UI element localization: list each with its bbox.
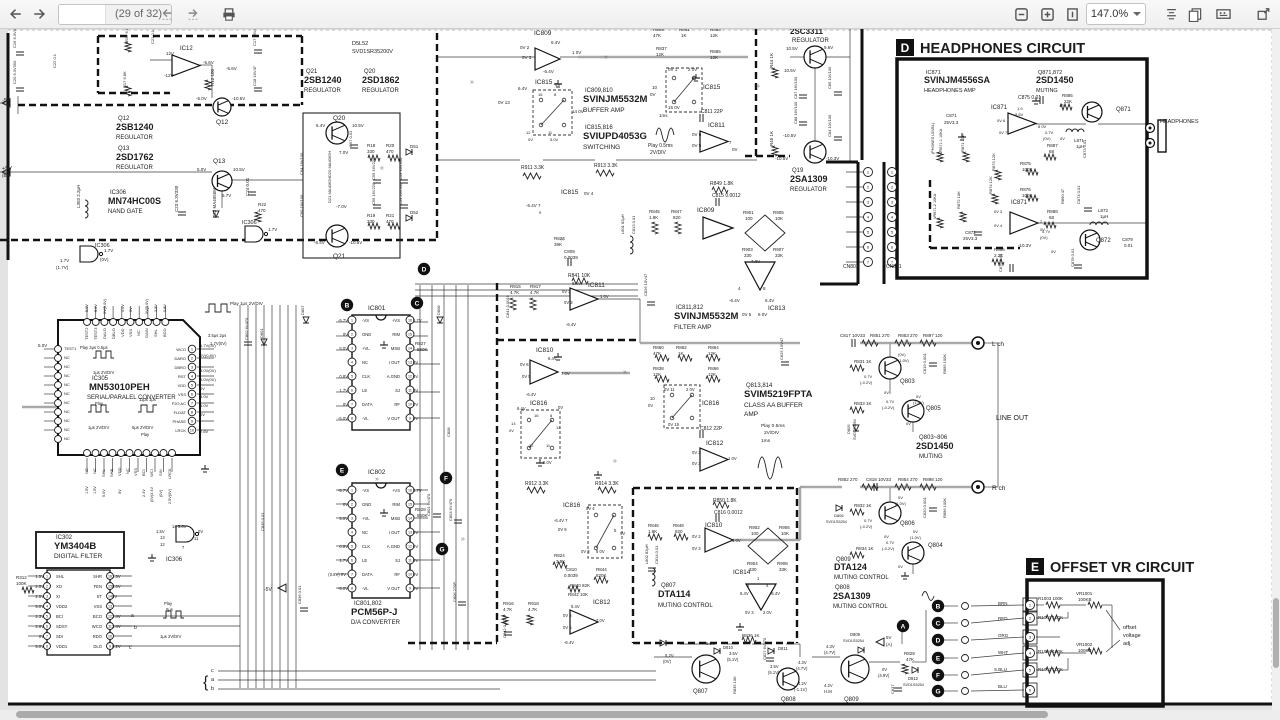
schematic-label: 1μs 2V/DIV bbox=[160, 634, 181, 639]
schematic-label: 560K bbox=[417, 347, 428, 352]
schematic-label: SHL bbox=[153, 328, 158, 337]
schematic-label: -VL bbox=[362, 416, 369, 421]
schematic-label: 2.3V bbox=[35, 614, 44, 619]
schematic-label: 3.5V bbox=[770, 664, 779, 669]
schematic-label: 12 bbox=[408, 544, 412, 548]
schematic-label: OFFSET VR CIRCUIT bbox=[1050, 560, 1194, 576]
schematic-label: 0V bbox=[413, 558, 418, 563]
schematic-label: MUTING CONTROL bbox=[834, 575, 889, 581]
schematic-label: C22 0.1 bbox=[52, 53, 57, 68]
schematic-label: V OUT bbox=[387, 586, 400, 591]
schematic-shape bbox=[962, 672, 969, 679]
schematic-label: HEADPHONES CIRCUIT bbox=[920, 41, 1085, 57]
schematic-label: 16 bbox=[534, 413, 539, 418]
vertical-scrollbar[interactable] bbox=[1272, 28, 1280, 710]
schematic-label: SHL bbox=[56, 574, 65, 579]
schematic-label: 0V bbox=[112, 594, 117, 599]
zoom-in-button[interactable] bbox=[1036, 3, 1058, 25]
schematic-label: 15 0V bbox=[668, 105, 680, 110]
schematic-label: C64 16V100 bbox=[299, 152, 304, 175]
schematic-label: R ch bbox=[992, 485, 1006, 492]
schematic-shape bbox=[101, 450, 108, 457]
schematic-label: C837 bbox=[890, 684, 895, 694]
schematic-label: 7 bbox=[351, 572, 353, 576]
schematic-shape bbox=[55, 400, 62, 407]
schematic-label: +VL bbox=[362, 516, 370, 521]
schematic-label: -10.5V bbox=[775, 156, 788, 161]
schematic-label: 47K bbox=[653, 33, 661, 38]
schematic-label: VSS bbox=[133, 468, 138, 476]
schematic-label: C813 0.01 bbox=[631, 215, 636, 234]
schematic-label: F2O AC bbox=[172, 401, 186, 406]
schematic-label: 12 bbox=[526, 130, 531, 135]
dual-page-button[interactable] bbox=[1184, 3, 1206, 25]
schematic-label: R903 bbox=[742, 247, 753, 252]
next-page-button[interactable] bbox=[182, 3, 204, 25]
schematic-label: 2SB1240 bbox=[304, 75, 342, 85]
schematic-label: NAND GATE bbox=[108, 209, 143, 215]
schematic-label: 2 0V bbox=[688, 67, 697, 72]
schematic-label: 0V 3 bbox=[745, 610, 754, 615]
schematic-label: NC bbox=[64, 373, 70, 378]
presentation-button[interactable] bbox=[1212, 3, 1234, 25]
schematic-label: C23 6.3V330 bbox=[174, 185, 179, 212]
schematic-label: 14 0V bbox=[572, 109, 584, 114]
schematic-label: REGULATOR bbox=[362, 88, 399, 94]
schematic-label: DARO bbox=[174, 356, 186, 361]
schematic-label: 0V bbox=[916, 394, 921, 399]
schematic-label: DTA124 bbox=[834, 562, 867, 572]
schematic-label: IC815 bbox=[561, 189, 579, 196]
schematic-label: 1.7V(0V) bbox=[210, 341, 227, 346]
schematic-label: R912 3.3K bbox=[525, 481, 549, 487]
schematic-label: 5.0V bbox=[339, 346, 348, 351]
schematic-label: CN871 bbox=[886, 264, 902, 270]
schematic-label: (1.7V) bbox=[56, 265, 69, 270]
schematic-label: G bbox=[439, 546, 444, 553]
schematic-label: 5.0V bbox=[35, 644, 44, 649]
schematic-label: R915 bbox=[510, 284, 521, 289]
history-back-button[interactable] bbox=[4, 3, 26, 25]
schematic-label: » bbox=[470, 79, 474, 86]
schematic-label: 1.8K bbox=[648, 529, 657, 534]
schematic-label: 0.7V bbox=[1042, 229, 1051, 234]
schematic-label: E bbox=[1031, 560, 1039, 574]
schematic-label: 10 bbox=[652, 85, 658, 90]
schematic-label: C827 6V470 bbox=[762, 637, 767, 660]
schematic-label: Q808 bbox=[781, 697, 796, 703]
schematic-label: TEST1 bbox=[64, 346, 77, 351]
schematic-label: 820 bbox=[675, 529, 683, 534]
schematic-label: XO bbox=[56, 584, 63, 589]
schematic-label: -5.7V bbox=[338, 318, 348, 323]
schematic-label: B bbox=[936, 603, 941, 610]
schematic-label: IC810 bbox=[705, 522, 723, 529]
schematic-label: » bbox=[375, 476, 379, 483]
schematic-shape bbox=[92, 450, 99, 457]
schematic-label: FEN bbox=[94, 584, 102, 589]
schematic-label: 4.3V bbox=[798, 660, 807, 665]
schematic-label: IC306 bbox=[242, 220, 257, 226]
schematic-label: 4.7K bbox=[510, 290, 519, 295]
schematic-label: HEADPHONES AMP bbox=[924, 88, 976, 94]
schematic-label: 2 bbox=[351, 502, 353, 506]
vertical-scrollbar-thumb[interactable] bbox=[1273, 598, 1279, 668]
document-area[interactable]: DE12345671234567123456123456789101162153… bbox=[0, 28, 1280, 720]
schematic-label: 5.0V bbox=[35, 604, 44, 609]
schematic-label: -6.4V bbox=[729, 298, 740, 303]
fit-page-button[interactable] bbox=[1061, 3, 1083, 25]
schematic-label: -5.0V bbox=[338, 416, 348, 421]
schematic-label: 2SD1450 bbox=[916, 441, 954, 451]
schematic-label: 1 0V bbox=[572, 50, 581, 55]
schematic-label: 470 bbox=[258, 208, 266, 213]
fit-page-icon bbox=[1066, 7, 1079, 22]
schematic-label: 0V 3 bbox=[581, 549, 590, 554]
schematic-label: 12K bbox=[710, 55, 718, 60]
schematic-label: 10 bbox=[408, 402, 412, 406]
schematic-label: 0V 7 bbox=[999, 130, 1008, 135]
schematic-label: R905 bbox=[773, 210, 784, 215]
schematic-label: IC812 bbox=[593, 599, 611, 606]
schematic-label: 1 bbox=[351, 318, 353, 322]
schematic-label: R862 bbox=[676, 345, 687, 350]
schematic-label: 0V 4 bbox=[584, 191, 594, 196]
schematic-label: 10K bbox=[775, 216, 783, 221]
print-button[interactable] bbox=[218, 3, 240, 25]
schematic-label: PCM56P-J bbox=[351, 607, 397, 618]
schematic-label: 0V bbox=[898, 564, 903, 569]
schematic-label: CLASS AA BUFFER bbox=[744, 402, 803, 409]
schematic-label: 0V bbox=[528, 137, 533, 142]
schematic-label: C803 6V470 bbox=[448, 498, 453, 521]
schematic-label: D811 bbox=[778, 646, 788, 651]
schematic-label: 8 bbox=[351, 416, 353, 420]
schematic-shape bbox=[962, 637, 969, 644]
schematic-label: 11 bbox=[408, 558, 412, 562]
schematic-label: MN74HC00S bbox=[108, 196, 161, 206]
schematic-label: C60 16V100 bbox=[299, 194, 304, 217]
schematic-label: R914 3.3K bbox=[595, 481, 619, 487]
schematic-label: IC816 bbox=[702, 400, 720, 407]
schematic-label: +VS bbox=[392, 488, 400, 493]
schematic-label: DATA bbox=[362, 402, 373, 407]
schematic-label: 4 bbox=[46, 604, 48, 608]
schematic-label: -6.4V bbox=[770, 591, 780, 596]
schematic-label: 5.0V(0V) bbox=[200, 377, 216, 382]
detach-window-icon bbox=[1256, 7, 1271, 21]
schematic-label: IC810 bbox=[536, 347, 554, 354]
page-number-input[interactable] bbox=[59, 5, 105, 24]
schematic-label: 0.01 bbox=[1124, 243, 1133, 248]
schematic-label: D20 MA4062H bbox=[327, 151, 332, 177]
zoom-out-button[interactable] bbox=[1010, 3, 1032, 25]
schematic-label: C55 16V220 bbox=[371, 157, 376, 180]
schematic-label: 0V bbox=[413, 360, 418, 365]
schematic-shape bbox=[1149, 142, 1152, 145]
schematic-shape bbox=[962, 688, 969, 695]
schematic-label: » bbox=[905, 339, 909, 346]
schematic-label: SWITCHING bbox=[583, 144, 620, 151]
schematic-shape bbox=[109, 450, 116, 457]
schematic-label: 12K bbox=[656, 52, 664, 57]
schematic-label: CN801 bbox=[843, 264, 859, 270]
schematic-label: 1μs 2V/DIV bbox=[93, 370, 114, 375]
schematic-shape bbox=[55, 427, 62, 434]
schematic-label: C19 6.3V35 bbox=[12, 28, 17, 48]
schematic-label: WHT bbox=[998, 650, 1008, 655]
schematic-label: R845 bbox=[649, 209, 660, 214]
schematic-label: 12V bbox=[166, 51, 174, 56]
schematic-label: 0.7V bbox=[864, 374, 873, 379]
schematic-label: IC812 bbox=[706, 440, 724, 447]
zoom-level-select[interactable]: 147.0% bbox=[1086, 3, 1146, 25]
schematic-label: 16 bbox=[408, 318, 412, 322]
schematic-label: D bbox=[901, 41, 910, 55]
schematic-label: (4.7V) bbox=[796, 666, 808, 671]
schematic-label: Q13 bbox=[213, 158, 226, 165]
schematic-label: 0V(0.8V) bbox=[200, 353, 216, 358]
previous-page-button[interactable] bbox=[156, 3, 178, 25]
schematic-shape bbox=[152, 450, 159, 457]
schematic-label: R908 bbox=[777, 561, 788, 566]
schematic-label: 0V bbox=[343, 502, 348, 507]
schematic-label: -6.4V 7 bbox=[554, 518, 568, 523]
schematic-label: IC801 bbox=[368, 305, 386, 312]
schematic-label: 1.7V bbox=[104, 248, 113, 253]
schematic-label: 6.4V bbox=[551, 40, 560, 45]
schematic-label: REGULATOR bbox=[304, 88, 341, 94]
schematic-shape bbox=[162, 319, 169, 326]
schematic-label: VR871-2 10KA bbox=[933, 193, 937, 219]
schematic-label: 15 bbox=[408, 332, 412, 336]
schematic-label: R875 bbox=[1020, 161, 1031, 166]
schematic-label: GAIN bbox=[144, 328, 149, 338]
schematic-label: -10.3V bbox=[1018, 243, 1031, 248]
schematic-label: SJ bbox=[395, 558, 400, 563]
schematic-page: DE12345671234567123456123456789101162153… bbox=[0, 28, 1280, 710]
schematic-label: RIM bbox=[392, 332, 400, 337]
schematic-label: (0V) bbox=[100, 257, 109, 262]
schematic-label: SJ bbox=[395, 388, 400, 393]
schematic-label: 100 bbox=[751, 531, 759, 536]
schematic-label: L ch bbox=[992, 341, 1004, 348]
schematic-label: C842 0.0015 bbox=[502, 614, 507, 638]
schematic-label: -10.5V bbox=[349, 240, 362, 245]
schematic-label: -5V bbox=[264, 587, 272, 593]
schematic-label: R837 bbox=[656, 46, 667, 51]
schematic-label: 0V 6 bbox=[692, 132, 702, 137]
zoom-level-value: 147.0% bbox=[1091, 8, 1128, 20]
schematic-label: HEADPHONES bbox=[1160, 119, 1199, 125]
schematic-label: RIM bbox=[392, 502, 400, 507]
schematic-label: (-0.2V) bbox=[882, 405, 895, 410]
schematic-label: 0V bbox=[884, 390, 889, 395]
schematic-label: MUTING bbox=[919, 454, 943, 460]
schematic-shape bbox=[143, 450, 150, 457]
arrow-left-icon bbox=[8, 7, 23, 21]
schematic-label: 0V 4 bbox=[586, 506, 595, 511]
arrow-right-small-icon bbox=[186, 6, 200, 22]
schematic-label: D812 bbox=[908, 676, 919, 681]
schematic-label: BCI bbox=[141, 469, 146, 476]
schematic-label: 4 bbox=[351, 530, 353, 534]
schematic-label: R872 10K bbox=[956, 191, 961, 209]
schematic-label: 0V 1 bbox=[668, 67, 678, 72]
schematic-label: 6 bbox=[46, 624, 48, 628]
schematic-label: 6.4V bbox=[765, 298, 774, 303]
schematic-label: C bbox=[415, 300, 420, 307]
schematic-label: D807 bbox=[300, 305, 305, 315]
schematic-label: 4 bbox=[351, 360, 353, 364]
schematic-label: NC bbox=[64, 409, 70, 414]
schematic-label: SVINJM4556SA bbox=[924, 75, 991, 85]
schematic-label: R45 1K bbox=[769, 131, 774, 146]
schematic-label: (1.0V) bbox=[910, 535, 922, 540]
schematic-label: 33K bbox=[775, 253, 783, 258]
schematic-label: R874 12K bbox=[988, 176, 993, 194]
schematic-label: 2SB1240 bbox=[116, 122, 154, 132]
schematic-shape bbox=[101, 319, 108, 326]
schematic-label: VDD2 bbox=[56, 604, 68, 609]
schematic-label: 25V3.3 bbox=[963, 236, 978, 241]
schematic-label: 9 bbox=[409, 416, 411, 420]
schematic-label: 5.7V bbox=[413, 318, 422, 323]
schematic-label: TEST3 bbox=[93, 327, 98, 340]
schematic-label: 0V 2 bbox=[520, 45, 530, 50]
schematic-label: 330 bbox=[367, 149, 375, 154]
schematic-label: SVD1SR35200V bbox=[352, 49, 393, 55]
schematic-label: VDD bbox=[178, 383, 187, 388]
schematic-label: 7 0V bbox=[561, 371, 570, 376]
schematic-label: NC bbox=[84, 468, 89, 474]
schematic-label: NC bbox=[362, 530, 368, 535]
schematic-label: 1.7V bbox=[339, 558, 348, 563]
schematic-label: 5.7V bbox=[222, 193, 231, 198]
schematic-label: 3.5V bbox=[729, 651, 738, 656]
horizontal-scrollbar-thumb[interactable] bbox=[16, 711, 1048, 718]
schematic-label: 0.8V bbox=[163, 304, 167, 312]
schematic-label: +VL bbox=[362, 346, 370, 351]
schematic-shape bbox=[153, 319, 160, 326]
schematic-label: 13 bbox=[108, 604, 112, 608]
schematic-shape bbox=[126, 450, 133, 457]
schematic-label: 2SA1309 bbox=[790, 174, 828, 184]
schematic-label: 10.5V bbox=[784, 68, 796, 73]
schematic-label: BRN bbox=[998, 601, 1008, 606]
schematic-label: C819 0.001 bbox=[922, 353, 927, 374]
schematic-label: 2V/DIV bbox=[764, 430, 780, 436]
schematic-label: (5.1V) bbox=[727, 657, 739, 662]
schematic-shape bbox=[55, 391, 62, 398]
schematic-label: R1004 100K bbox=[1038, 649, 1063, 654]
schematic-label: 0.8V bbox=[339, 544, 348, 549]
schematic-label: 7 bbox=[351, 402, 353, 406]
schematic-label: 0V bbox=[413, 374, 418, 379]
schematic-label: 100 bbox=[745, 216, 753, 221]
schematic-shape bbox=[55, 346, 62, 353]
schematic-label: 0V 6 bbox=[997, 118, 1006, 123]
schematic-label: RDO bbox=[93, 634, 103, 639]
schematic-label: « bbox=[560, 236, 564, 243]
schematic-label: A.GND bbox=[387, 544, 400, 549]
schematic-label: REGULATOR bbox=[790, 187, 827, 193]
schematic-label: DBLO bbox=[111, 328, 116, 339]
schematic-label: R917 bbox=[530, 284, 541, 289]
schematic-label: C20 6.3V350 bbox=[12, 60, 17, 84]
schematic-label: 0V 3 bbox=[692, 546, 701, 551]
schematic-label: 330 bbox=[744, 253, 752, 258]
schematic-label: R19 bbox=[367, 213, 376, 218]
schematic-label: 25V3.3 bbox=[944, 120, 959, 125]
schematic-label: NC bbox=[92, 468, 97, 474]
schematic-label: R20 bbox=[386, 143, 395, 148]
schematic-label: WCI bbox=[149, 469, 154, 477]
schematic-label: 5.7V bbox=[413, 488, 422, 493]
schematic-label: 0V bbox=[650, 92, 656, 97]
schematic-label: 9.6V bbox=[1015, 112, 1024, 117]
schematic-label: DIGITAL FILTER bbox=[54, 553, 103, 560]
schematic-label: offset bbox=[1123, 625, 1137, 631]
schematic-label: R834 1K bbox=[856, 546, 874, 551]
horizontal-scrollbar[interactable] bbox=[0, 710, 1280, 720]
schematic-label: 0V 4 bbox=[994, 223, 1003, 228]
schematic-label: » bbox=[623, 369, 627, 376]
schematic-label: C806 270P bbox=[452, 582, 457, 602]
schematic-label: 0V bbox=[620, 531, 625, 536]
schematic-label: 5 bbox=[46, 614, 48, 618]
schematic-label: 0.2V bbox=[112, 644, 121, 649]
schematic-label: R842 10K bbox=[568, 592, 588, 597]
schematic-label: R849 1.8K bbox=[710, 181, 734, 187]
schematic-label: 0V bbox=[200, 412, 205, 417]
schematic-label: LRCK bbox=[167, 468, 172, 479]
schematic-label: R832 1K bbox=[854, 503, 872, 508]
schematic-label: -5.6V bbox=[226, 66, 237, 71]
history-forward-button[interactable] bbox=[28, 3, 50, 25]
schematic-label: Q807 bbox=[693, 689, 708, 695]
schematic-label: (-1.1V) bbox=[794, 687, 807, 692]
schematic-label: GND bbox=[362, 502, 371, 507]
schematic-label: 0V 6 bbox=[563, 613, 572, 618]
schematic-label: S.BLU bbox=[994, 667, 1007, 672]
schematic-label: IC811 bbox=[708, 122, 725, 129]
schematic-label: 2.5V bbox=[35, 584, 44, 589]
schematic-label: 0.7V bbox=[864, 518, 873, 523]
schematic-shape bbox=[118, 450, 125, 457]
schematic-label: -6.4V bbox=[566, 322, 576, 327]
schematic-label: 12K bbox=[708, 351, 716, 356]
detach-window-button[interactable] bbox=[1252, 3, 1274, 25]
schematic-label: R854 270 bbox=[898, 477, 918, 482]
schematic-label: R906 bbox=[779, 525, 790, 530]
schematic-label: IC813 bbox=[768, 305, 786, 312]
schematic-label: R17 6.8K bbox=[122, 71, 127, 88]
schematic-label: C87 16V100 bbox=[793, 76, 798, 99]
schematic-label: 2SD1450 bbox=[1036, 75, 1074, 85]
schematic-label: (1.0V) bbox=[898, 358, 910, 363]
schematic-label: Play bbox=[141, 432, 150, 437]
schematic-label: 5.0V bbox=[339, 516, 348, 521]
schematic-label: C53 16V330 bbox=[398, 157, 403, 180]
schematic-label: 2 bbox=[46, 584, 48, 588]
schematic-label: 12 bbox=[160, 542, 165, 547]
schematic-label: 1 bbox=[46, 574, 48, 578]
schematic-label: IC816 bbox=[563, 502, 581, 509]
schematic-label: 0V bbox=[913, 529, 918, 534]
continuous-view-button[interactable] bbox=[1160, 3, 1182, 25]
schematic-label: 820K bbox=[596, 573, 607, 578]
